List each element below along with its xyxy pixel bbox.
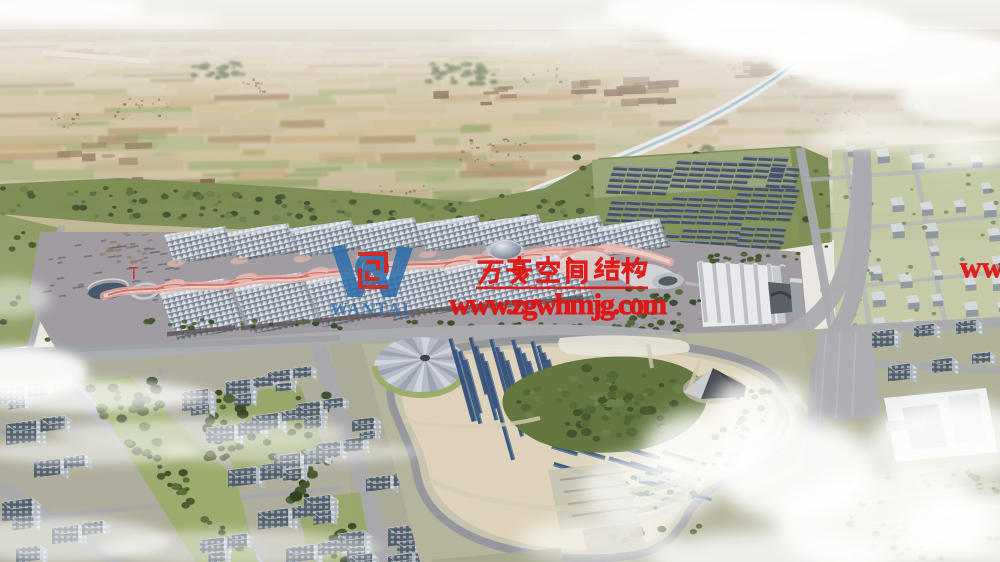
svg-text:www.: www. [960,251,1000,284]
svg-text:WANTAI: WANTAI [330,299,416,319]
svg-text:www.zgwhmjg.com: www.zgwhmjg.com [449,288,667,321]
